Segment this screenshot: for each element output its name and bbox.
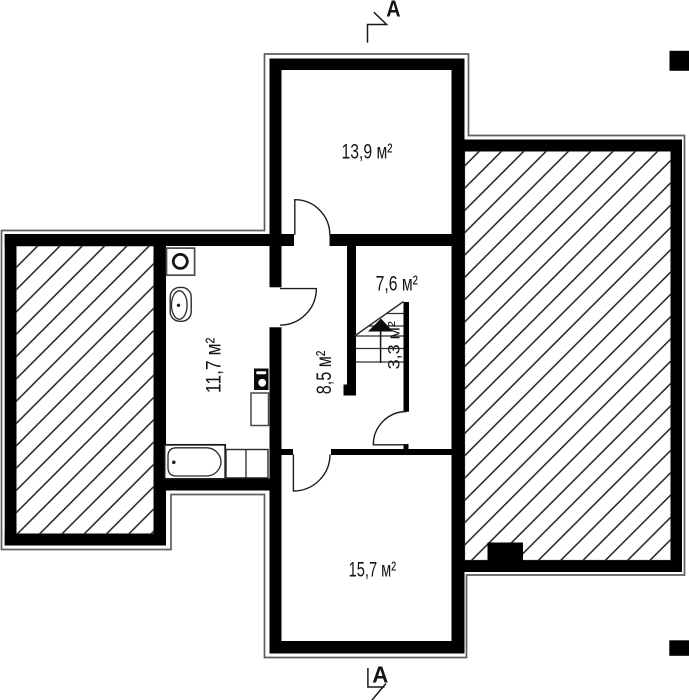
svg-text:15,7 м²: 15,7 м² <box>349 559 397 582</box>
svg-text:A: A <box>386 0 400 22</box>
svg-text:7,6 м²: 7,6 м² <box>376 272 418 295</box>
svg-text:11,7 м²: 11,7 м² <box>203 338 226 394</box>
svg-text:8,5 м²: 8,5 м² <box>313 351 336 395</box>
svg-text:13,9 м²: 13,9 м² <box>342 141 393 164</box>
svg-text:A: A <box>372 661 388 687</box>
svg-text:3,3 м²: 3,3 м² <box>385 321 404 370</box>
